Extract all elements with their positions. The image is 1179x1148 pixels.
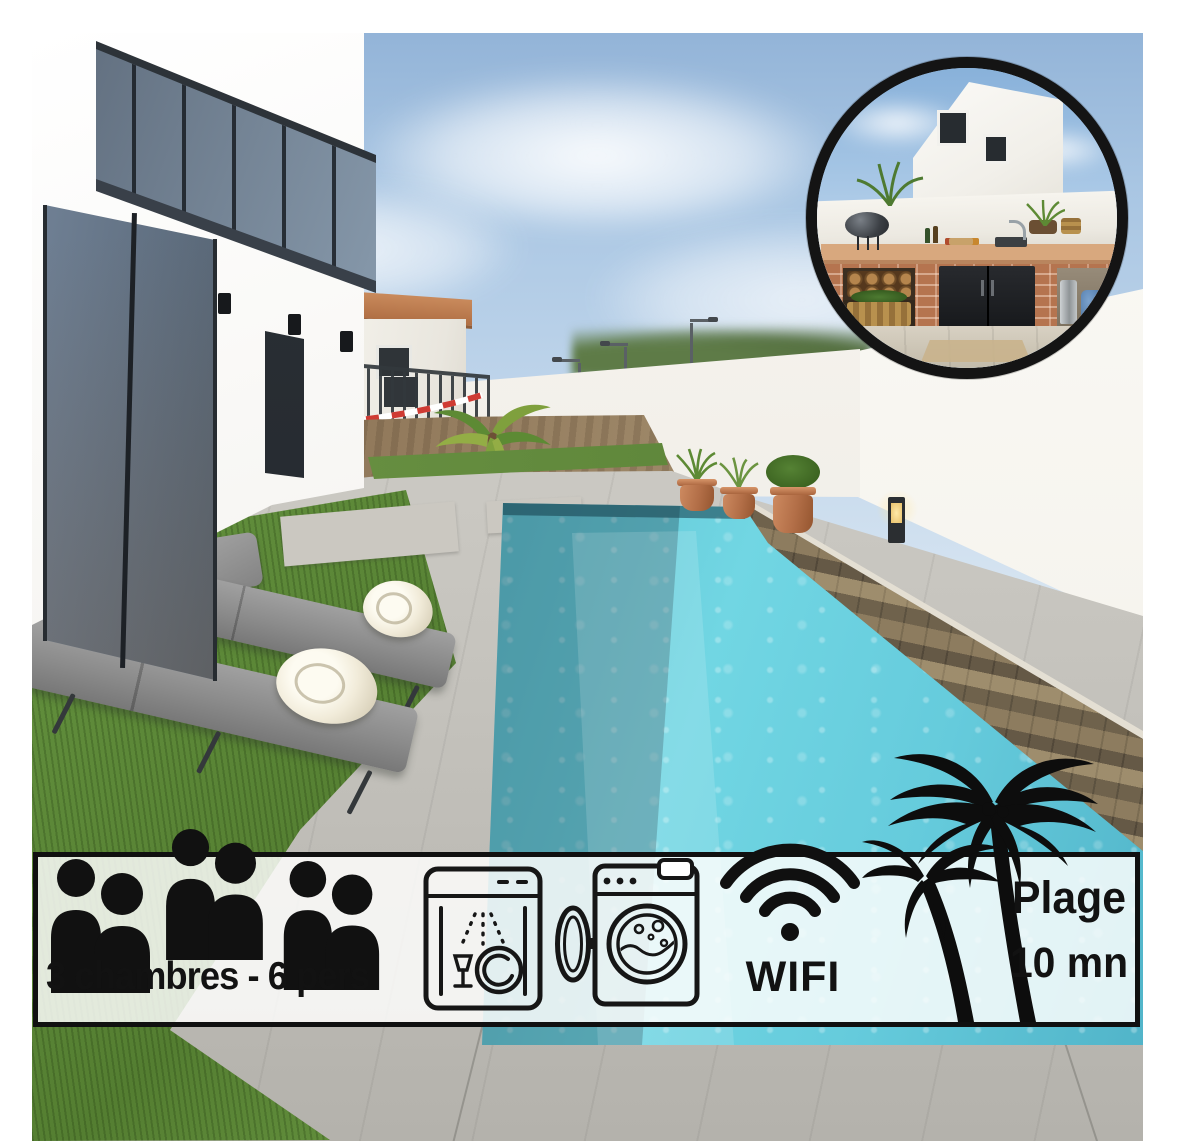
inset-photo-outdoor-kitchen <box>806 57 1128 379</box>
wall-sconce <box>340 331 353 352</box>
capacity-label: 3 chambres - 6 pers <box>46 955 369 999</box>
pot-plant <box>718 455 760 489</box>
planter-plants <box>1025 200 1065 226</box>
patio-palm <box>855 160 925 206</box>
washing-machine-icon <box>555 858 705 1010</box>
pot-bush <box>766 455 820 489</box>
wifi-label: WIFI <box>698 953 888 1002</box>
door-mat <box>921 340 1031 362</box>
food-board <box>945 238 979 245</box>
dishwasher-icon <box>423 866 543 1011</box>
plant-pot <box>770 471 816 533</box>
oil-bottle <box>933 226 938 243</box>
beach-label-line1: Plage <box>998 875 1141 920</box>
wicker-basket <box>847 302 911 326</box>
beach-label-line2: 10 mn <box>998 942 1141 985</box>
wifi-icon <box>712 826 868 944</box>
wicker-pot <box>1061 218 1081 234</box>
cabinet-doors <box>939 266 1035 328</box>
window <box>983 134 1009 164</box>
plant-pot <box>720 463 758 519</box>
trash-can <box>1060 280 1077 324</box>
people-pair-icon <box>163 828 263 960</box>
plant-pot <box>677 453 717 511</box>
pot-plant <box>675 447 719 481</box>
info-banner: 3 chambres - 6 pers <box>33 852 1140 1027</box>
bollard-lamp <box>888 497 905 543</box>
wall-sconce <box>218 293 231 314</box>
beach-distance-label: Plage 10 mn <box>994 875 1144 985</box>
gas-bottle <box>1081 290 1103 326</box>
oil-bottle <box>925 228 930 243</box>
bbq-grill <box>845 208 891 250</box>
window <box>937 110 969 146</box>
wall-sconce <box>288 314 301 335</box>
rental-flyer-poster: 3 chambres - 6 pers <box>0 0 1179 1148</box>
